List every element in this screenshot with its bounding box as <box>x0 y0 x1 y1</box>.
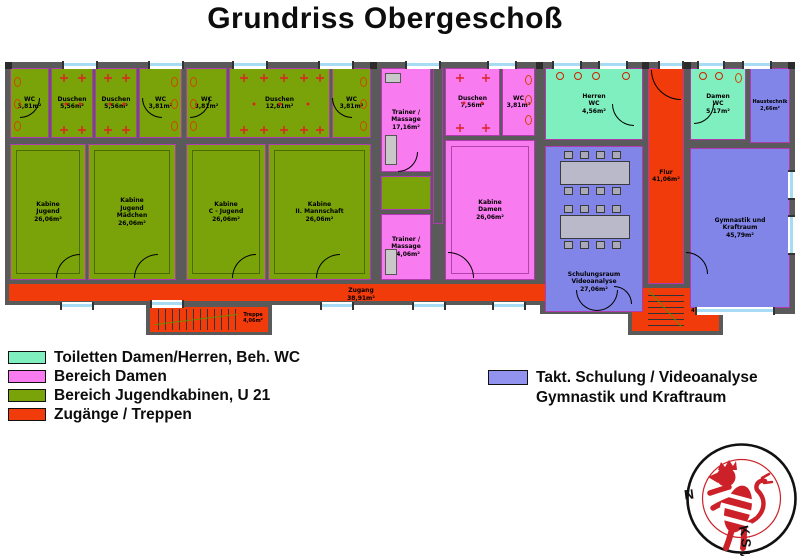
shower-head-icon <box>52 69 94 139</box>
window <box>788 215 795 255</box>
window <box>788 170 795 200</box>
ksv-hessen-kassel-logo: KSV KASSEL HESSEN <box>684 441 799 556</box>
bench-line <box>94 150 170 274</box>
column-marker <box>684 62 691 69</box>
legend-swatch <box>8 408 46 421</box>
urinal-icon <box>556 72 564 80</box>
chair-icon <box>580 241 589 249</box>
legend-label: Gymnastik und Kraftraum <box>536 389 758 406</box>
legend-item-jugendkabinen: Bereich Jugendkabinen, U 21 <box>8 388 300 403</box>
window <box>62 61 98 69</box>
column-marker <box>788 62 795 69</box>
legend-label: Bereich Damen <box>54 368 167 385</box>
chair-icon <box>564 205 573 213</box>
legend-item-damen: Bereich Damen <box>8 369 300 384</box>
toilet-icon <box>190 121 197 131</box>
svg-text:KASSEL: KASSEL <box>684 546 696 556</box>
toilet-icon <box>525 95 532 105</box>
toilet-icon <box>360 77 367 87</box>
corridor-label: Zugang 38,91m² <box>330 287 392 302</box>
column-marker <box>370 62 377 69</box>
chair-icon <box>612 205 621 213</box>
toilet-icon <box>360 121 367 131</box>
chair-icon <box>564 241 573 249</box>
room-duschen: Duschen 5,56m² <box>51 68 93 138</box>
room-trainer-massage-2: Trainer / Massage 14,06m² <box>381 214 431 280</box>
conference-table <box>560 215 630 239</box>
massage-bench <box>385 135 397 165</box>
chair-icon <box>596 241 605 249</box>
toilet-icon <box>14 77 21 87</box>
window <box>487 61 517 69</box>
legend-item-toiletten: Toiletten Damen/Herren, Beh. WC <box>8 350 300 365</box>
urinal-icon <box>622 72 630 80</box>
legend-left: Toiletten Damen/Herren, Beh. WC Bereich … <box>8 350 300 426</box>
legend-swatch <box>488 370 528 385</box>
wardrobe-lockers <box>433 68 443 224</box>
column-marker <box>642 62 649 69</box>
desk <box>385 73 401 83</box>
toilet-icon <box>14 121 21 131</box>
legend-item-schulung: Takt. Schulung / Videoanalyse <box>488 370 758 385</box>
legend-label: Zugänge / Treppen <box>54 406 192 423</box>
stair-left-label: Treppe 4,06m² <box>240 312 266 325</box>
window <box>658 61 684 69</box>
room-duschen: Duschen 5,56m² <box>95 68 137 138</box>
room-haustechnik: Haustechnik 2,66m² <box>750 68 790 143</box>
bench-line <box>451 146 529 274</box>
room-kabine-jugend-maedchen: Kabine Jugend Mädchen 26,06m² <box>88 144 176 280</box>
window <box>412 302 446 310</box>
chair-icon <box>596 187 605 195</box>
legend-label: Takt. Schulung / Videoanalyse <box>536 369 758 386</box>
massage-bench <box>385 249 397 275</box>
toilet-icon <box>735 73 742 83</box>
urinal-icon <box>592 72 600 80</box>
room-kabine-mannschaft: Kabine II. Mannschaft 26,06m² <box>268 144 371 280</box>
legend-label: Toiletten Damen/Herren, Beh. WC <box>54 349 300 366</box>
chair-icon <box>564 187 573 195</box>
shower-head-icon <box>96 69 138 139</box>
toilet-icon <box>525 75 532 85</box>
chair-icon <box>580 187 589 195</box>
window <box>405 61 441 69</box>
sink-icon <box>715 72 723 80</box>
toilet-icon <box>171 77 178 87</box>
urinal-icon <box>574 72 582 80</box>
legend-label: Bereich Jugendkabinen, U 21 <box>54 387 270 404</box>
window <box>232 61 268 69</box>
window <box>552 61 582 69</box>
corridor-flur: Flur 41,06m² <box>648 68 684 284</box>
legend-swatch <box>8 389 46 402</box>
room-storage <box>381 176 431 210</box>
toilet-icon <box>171 99 178 109</box>
bench-line <box>274 150 365 274</box>
floor-plan-page: Grundriss Obergeschoß Zugang 38,91m² Tre… <box>0 0 800 556</box>
room-wc-damenbereich: WC 3,81m² <box>502 68 535 136</box>
window <box>598 61 628 69</box>
window <box>318 61 354 69</box>
page-title: Grundriss Obergeschoß <box>0 0 770 36</box>
conference-table <box>560 161 630 185</box>
legend-right: Takt. Schulung / Videoanalyse Gymnastik … <box>488 370 758 406</box>
toilet-icon <box>360 99 367 109</box>
window <box>697 61 725 69</box>
chair-icon <box>612 187 621 195</box>
window <box>60 302 94 310</box>
room-duschen-damen: Duschen 7,56m² <box>445 68 500 136</box>
chair-icon <box>580 205 589 213</box>
window <box>150 300 184 308</box>
legend-item-zugaenge: Zugänge / Treppen <box>8 407 300 422</box>
sink-icon <box>699 72 707 80</box>
shower-head-icon <box>446 69 501 137</box>
window <box>742 61 772 69</box>
corridor-zugang <box>5 284 632 305</box>
toilet-icon <box>190 77 197 87</box>
chair-icon <box>596 151 605 159</box>
window <box>492 302 526 310</box>
column-marker <box>536 62 543 69</box>
room-schulungsraum: Schulungsraum Videoanalyse 27,06m² <box>545 146 643 312</box>
legend-swatch <box>8 351 46 364</box>
column-marker <box>5 62 12 69</box>
chair-icon <box>596 205 605 213</box>
shower-head-icon <box>230 69 331 139</box>
window <box>320 302 354 310</box>
room-gymnastik-kraftraum: Gymnastik und Kraftraum 45,79m² <box>690 148 790 308</box>
legend-swatch <box>8 370 46 383</box>
window <box>148 61 184 69</box>
chair-icon <box>564 151 573 159</box>
chair-icon <box>612 241 621 249</box>
toilet-icon <box>171 121 178 131</box>
chair-icon <box>580 151 589 159</box>
chair-icon <box>612 151 621 159</box>
stair-left: Treppe 4,06m² <box>150 307 268 332</box>
room-duschen-gross: Duschen 12,81m² <box>229 68 330 138</box>
window <box>695 307 775 315</box>
toilet-icon <box>525 115 532 125</box>
